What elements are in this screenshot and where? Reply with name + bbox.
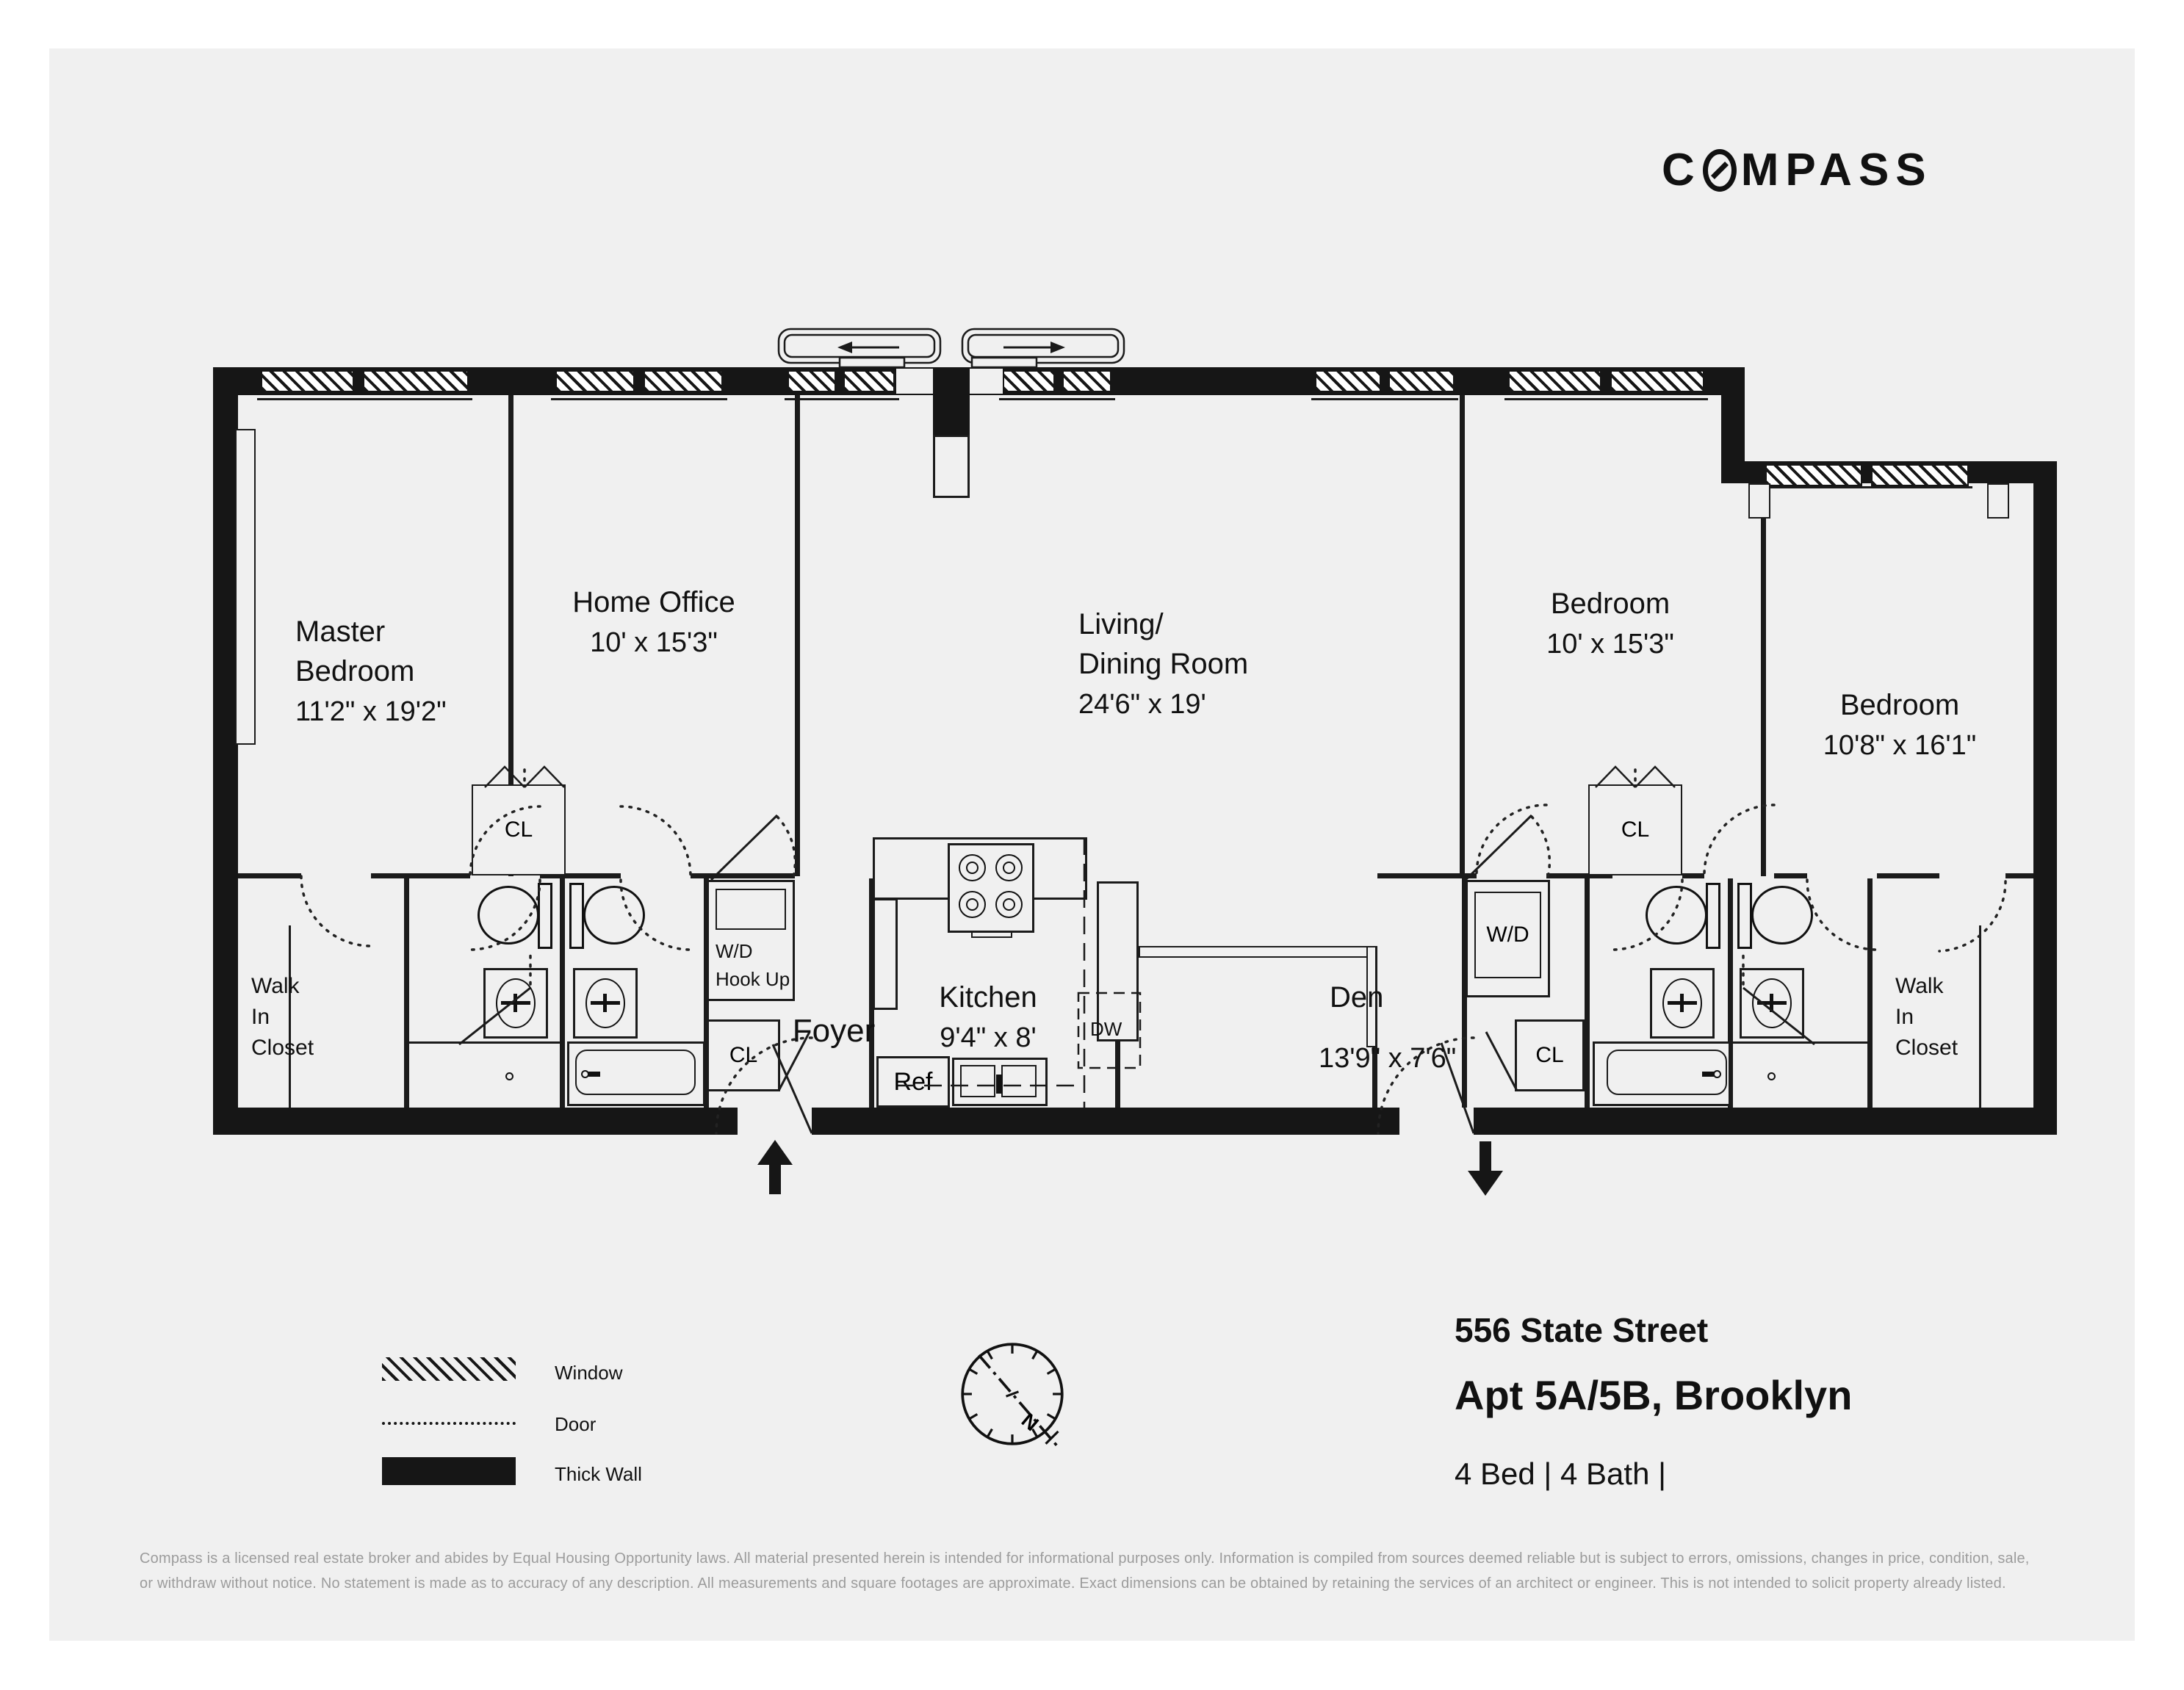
room-dims-bedroom3: 10' x 15'3" bbox=[1546, 630, 1674, 658]
room-dims-bedroom4: 10'8" x 16'1" bbox=[1823, 732, 1976, 759]
compass-o-icon bbox=[1703, 149, 1737, 192]
legend-window-label: Window bbox=[555, 1363, 622, 1382]
compass-logo: CMPASS bbox=[1662, 144, 1933, 196]
room-dims-office: 10' x 15'3" bbox=[590, 629, 718, 657]
floor-plan: Ref W/D Hook Up CL W/D CL CL bbox=[213, 367, 2057, 1135]
room-label-bedroom3: Bedroom bbox=[1551, 589, 1670, 618]
room-label-living-2: Dining Room bbox=[1078, 649, 1248, 679]
kitchen-dims: 9'4" x 8' bbox=[940, 1024, 1037, 1052]
legend-thick-wall-label: Thick Wall bbox=[555, 1465, 642, 1484]
kitchen-label: Kitchen bbox=[939, 983, 1037, 1012]
wic-right-label-3: Closet bbox=[1895, 1037, 1958, 1059]
logo-text-post: MPASS bbox=[1741, 144, 1933, 196]
north-arrow-compass: N bbox=[946, 1328, 1078, 1460]
address-street: 556 State Street bbox=[1455, 1313, 1708, 1347]
legend: Window Door Thick Wall bbox=[382, 1348, 896, 1539]
legend-window-swatch bbox=[382, 1357, 516, 1381]
disclaimer-line-2: or withdraw without notice. No statement… bbox=[140, 1576, 2006, 1591]
den-dims: 13'9" x 7'6" bbox=[1319, 1044, 1456, 1072]
entry-arrow-up-icon bbox=[757, 1140, 793, 1199]
north-label: N bbox=[1017, 1409, 1043, 1436]
logo-text-pre: C bbox=[1662, 144, 1701, 196]
legend-door-swatch bbox=[382, 1422, 516, 1425]
foyer-label: Foyer bbox=[793, 1015, 875, 1047]
address-meta: 4 Bed | 4 Bath | bbox=[1455, 1459, 1666, 1489]
wic-right-label-1: Walk bbox=[1895, 975, 1944, 997]
wic-left-label-1: Walk bbox=[251, 975, 300, 997]
address-unit: Apt 5A/5B, Brooklyn bbox=[1455, 1375, 1852, 1416]
room-label-living-1: Living/ bbox=[1078, 610, 1164, 639]
legend-thick-wall-swatch bbox=[382, 1457, 516, 1485]
legend-door-label: Door bbox=[555, 1415, 596, 1434]
den-label: Den bbox=[1330, 983, 1383, 1012]
room-dims-master: 11'2" x 19'2" bbox=[295, 698, 447, 726]
entry-arrow-down-icon bbox=[1468, 1138, 1503, 1197]
floorplan-card: CMPASS bbox=[49, 48, 2135, 1641]
dw-label: DW bbox=[1090, 1019, 1122, 1039]
room-label-bedroom4: Bedroom bbox=[1840, 690, 1959, 720]
plan-annotations bbox=[213, 323, 2057, 1135]
room-label-master-1: Master bbox=[295, 617, 385, 646]
disclaimer-line-1: Compass is a licensed real estate broker… bbox=[140, 1551, 2030, 1566]
room-label-office: Home Office bbox=[572, 588, 735, 617]
wic-left-label-2: In bbox=[251, 1006, 270, 1028]
wic-right-label-2: In bbox=[1895, 1006, 1914, 1028]
room-label-master-2: Bedroom bbox=[295, 657, 414, 686]
wic-left-label-3: Closet bbox=[251, 1037, 314, 1059]
room-dims-living: 24'6" x 19' bbox=[1078, 690, 1206, 718]
